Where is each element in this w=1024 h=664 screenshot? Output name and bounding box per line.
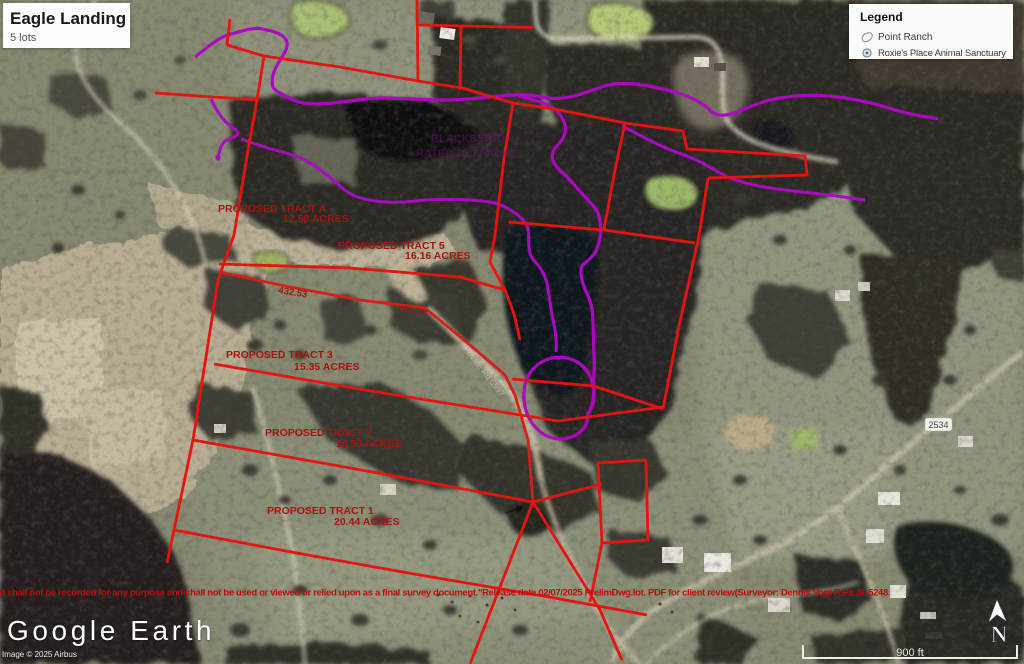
svg-text:2534: 2534	[928, 420, 948, 430]
svg-text:12.58 ACRES: 12.58 ACRES	[283, 213, 349, 225]
svg-text:RATED 25.77 ACRE: RATED 25.77 ACRE	[416, 148, 517, 160]
svg-text:15.35 ACRES: 15.35 ACRES	[294, 361, 360, 373]
svg-text:BLACKBERRY I: BLACKBERRY I	[431, 133, 514, 145]
svg-text:20.44 ACRES: 20.44 ACRES	[334, 516, 400, 528]
svg-text:gd shall not be recorded for a: gd shall not be recorded for any purpose…	[0, 588, 888, 599]
svg-text:N: N	[991, 622, 1008, 647]
svg-text:900 ft: 900 ft	[896, 647, 924, 659]
svg-text:16.16 ACRES: 16.16 ACRES	[405, 250, 471, 262]
svg-text:PROPOSED TRACT 3: PROPOSED TRACT 3	[226, 349, 333, 361]
svg-text:16.50 ACRES: 16.50 ACRES	[336, 438, 402, 450]
